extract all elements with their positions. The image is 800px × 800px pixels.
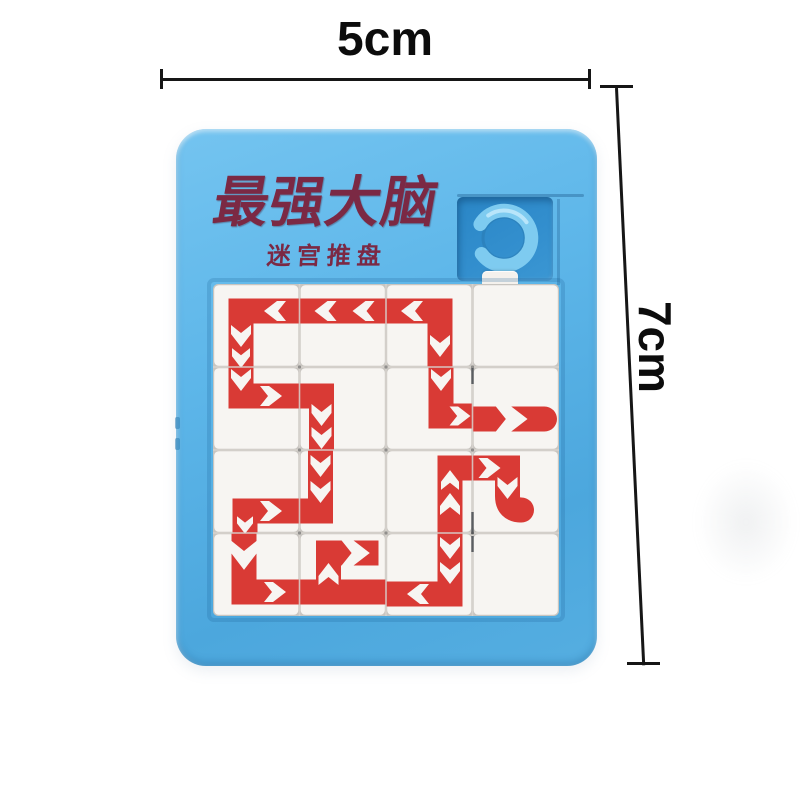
- width-dimension-label: 5cm: [280, 12, 490, 67]
- frame-channel-line: [557, 199, 560, 285]
- seam-dot: [471, 448, 474, 451]
- toy-title: 最强大脑: [185, 157, 469, 237]
- seam-dot: [298, 448, 301, 451]
- seam-mark: [471, 368, 473, 384]
- maze-tile-path: [300, 301, 387, 321]
- maze-tile: [474, 285, 558, 366]
- maze-tile: [214, 285, 298, 366]
- seam-dot: [471, 365, 474, 368]
- seam-dot: [384, 531, 387, 534]
- seam-dot: [471, 531, 474, 534]
- height-dimension-tick-bottom: [627, 662, 660, 665]
- seam-dot: [384, 365, 387, 368]
- maze-tile: [301, 285, 385, 366]
- width-dimension-tick-right: [588, 69, 591, 89]
- seam-dot: [298, 531, 301, 534]
- height-dimension-tick-top: [600, 85, 633, 88]
- maze-tile-path: [473, 404, 558, 435]
- height-dimension-label: 7cm: [630, 297, 682, 397]
- toy-subtitle: 迷宫推盘: [191, 236, 463, 271]
- seam-mark: [471, 536, 473, 552]
- seam-mark: [471, 512, 473, 534]
- seam-dot: [298, 365, 301, 368]
- puzzle-toy: 最强大脑 迷宫推盘: [176, 129, 597, 666]
- maze-tile: [474, 534, 558, 615]
- product-photo: 5cm 7cm 最强大脑 迷宫推盘: [0, 0, 800, 800]
- background-shadow: [696, 462, 796, 582]
- seam-dot: [384, 448, 387, 451]
- maze-grid: [213, 284, 559, 616]
- keyring-icon: [458, 191, 550, 283]
- frame-notch: [175, 417, 180, 429]
- width-dimension-tick-left: [160, 69, 163, 89]
- frame-notch: [175, 438, 180, 450]
- width-dimension-line: [162, 78, 591, 81]
